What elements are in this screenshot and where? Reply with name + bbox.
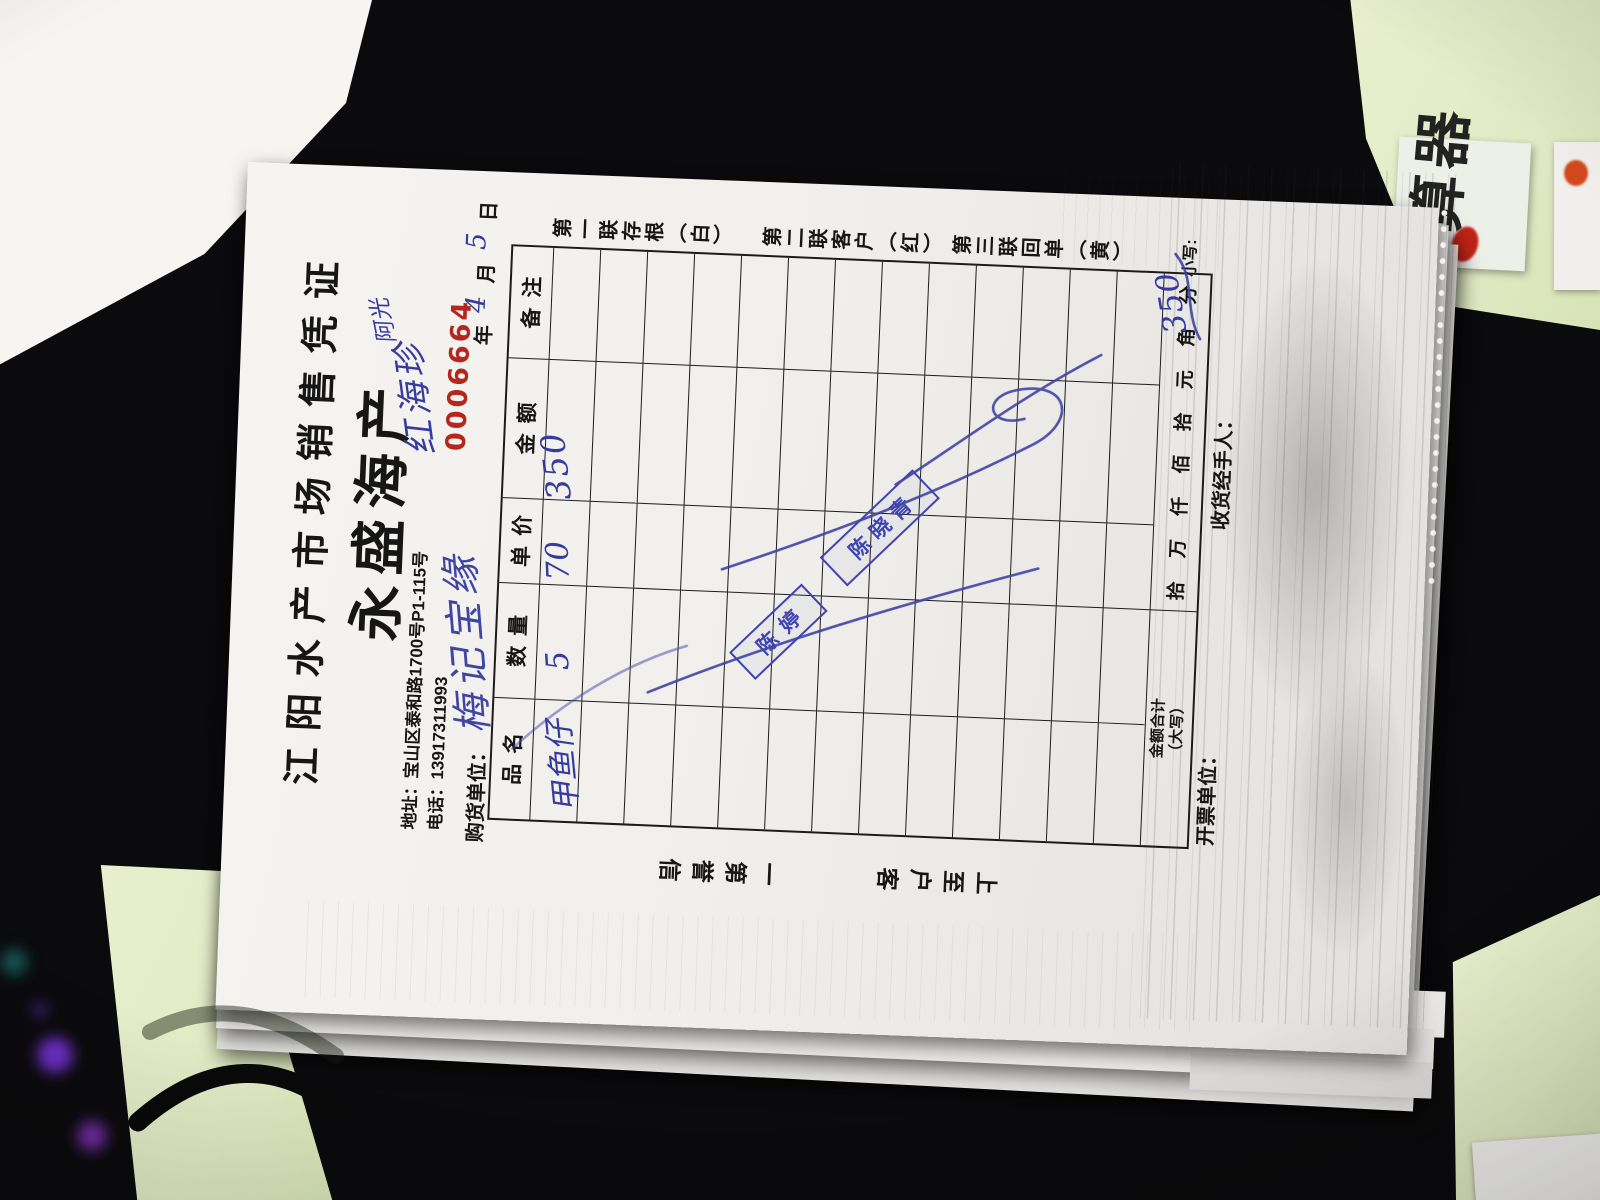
cable-and-leds <box>0 0 1600 1200</box>
desk-photo-scene: 算器 江阳水产市场销售凭证 永盛海产 地址：宝山区泰和路1700号P1-115号… <box>0 0 1600 1200</box>
